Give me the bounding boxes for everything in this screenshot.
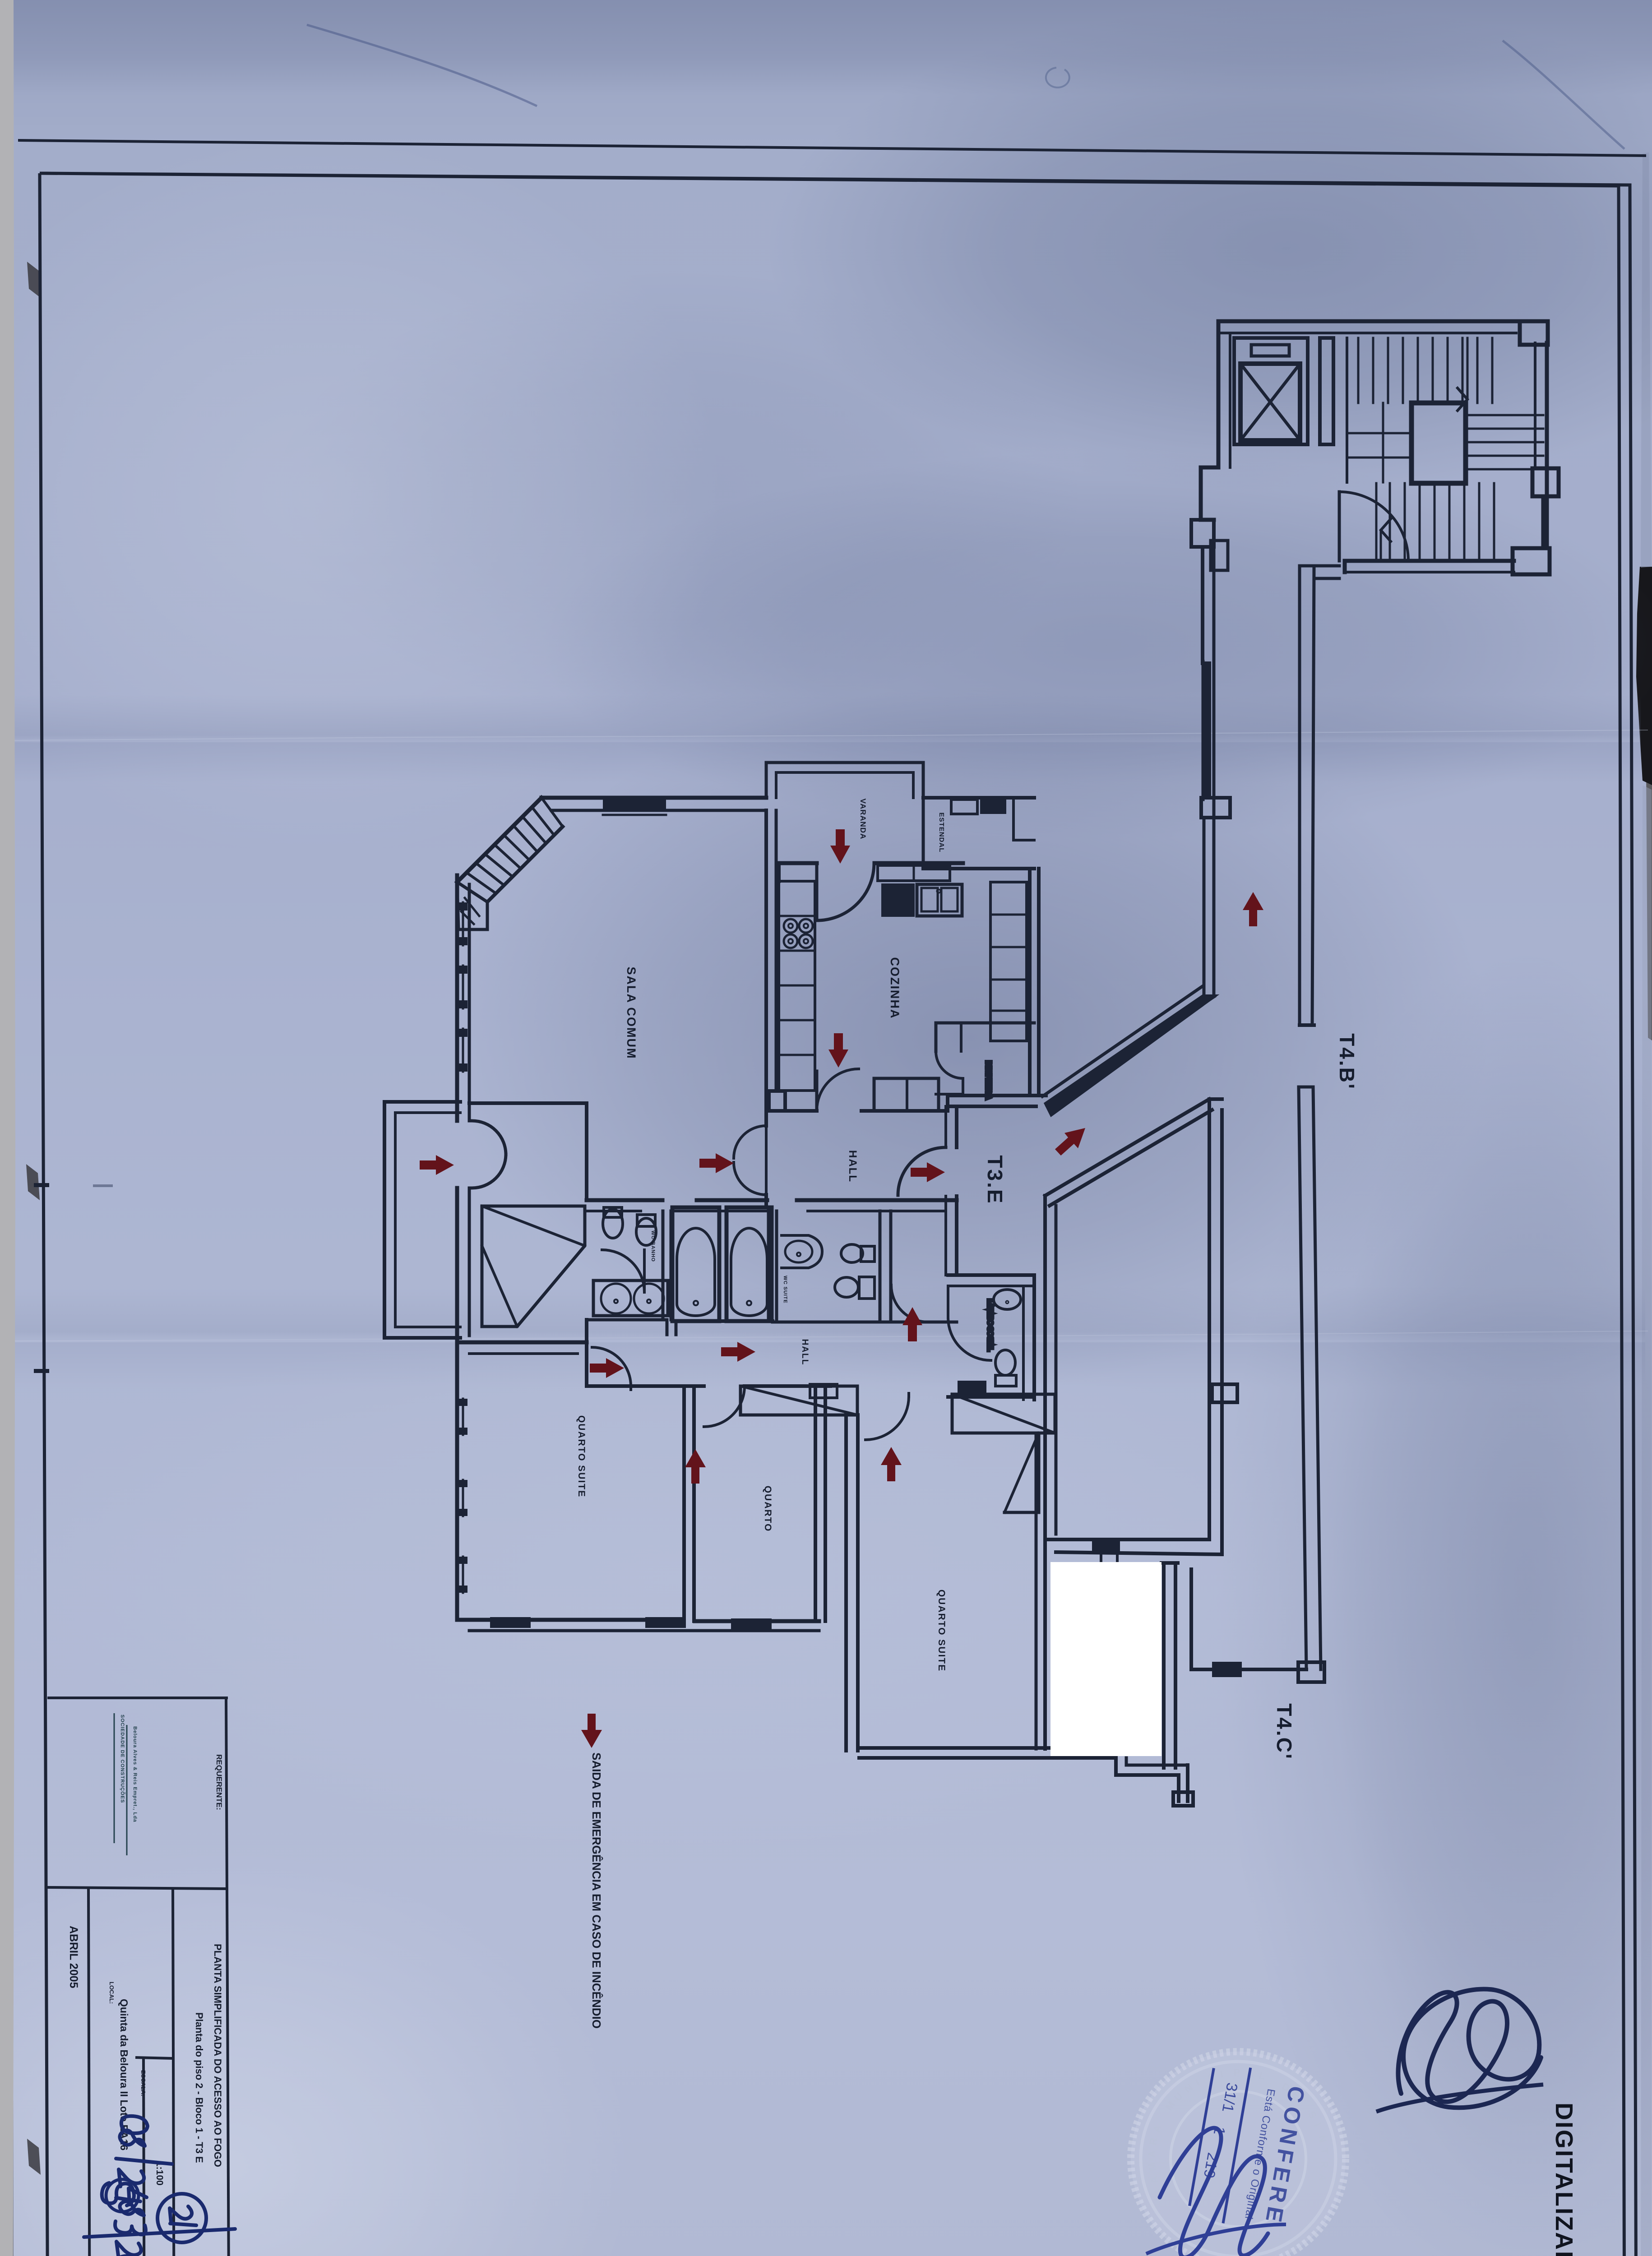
svg-text:ESCALA:: ESCALA: [140,2070,147,2096]
svg-text:T4.C': T4.C' [1273,1703,1296,1760]
svg-text:SALA COMUM: SALA COMUM [625,967,638,1059]
svg-text:WC SUITE: WC SUITE [782,1276,788,1304]
svg-text:QUARTO SUITE: QUARTO SUITE [936,1590,947,1672]
svg-text:ABRIL 2005: ABRIL 2005 [67,1926,80,1988]
svg-text:WC BANHO: WC BANHO [650,1230,656,1262]
svg-text:M: M [1146,2162,1158,2172]
svg-text:HALL: HALL [847,1150,859,1183]
svg-text:T4.B': T4.B' [1335,1033,1359,1090]
svg-text:HALL: HALL [800,1339,810,1366]
svg-text:LOCAL:: LOCAL: [108,1982,115,2004]
svg-text:COZINHA: COZINHA [888,957,902,1019]
svg-text:R: R [1319,2161,1330,2168]
svg-text:VARANDA: VARANDA [859,799,867,840]
svg-text:PLANTA SIMPLIFICADA DO ACESSO: PLANTA SIMPLIFICADA DO ACESSO AO FOGO [212,1944,223,2167]
svg-text:P: P [1233,2066,1240,2078]
svg-text:REQUERENTE:: REQUERENTE: [215,1754,223,1810]
svg-text:DIGITALIZADO: DIGITALIZADO [1550,2103,1578,2256]
svg-text:SAIDA DE EMERGÊNCIA EM CASO DE: SAIDA DE EMERGÊNCIA EM CASO DE INCÊNDIO [590,1752,603,2029]
svg-text:DISPENSA: DISPENSA [985,1061,992,1100]
svg-text:Planta do piso 2 - Bloco 1 - T: Planta do piso 2 - Bloco 1 - T3 E [194,2012,205,2163]
svg-text:A: A [1146,2150,1157,2158]
svg-text:QUARTO SUITE: QUARTO SUITE [576,1415,587,1498]
svg-text:Beloura Alves & Reis Empret.,: Beloura Alves & Reis Empret., Lda [132,1726,138,1822]
svg-text:SOCIEDADE DE CONSTRUÇÕES: SOCIEDADE DE CONSTRUÇÕES [120,1715,125,1803]
svg-text:ESTENDAL: ESTENDAL [938,813,945,853]
svg-text:QUARTO: QUARTO [763,1486,773,1532]
svg-text:LAVABO SOCIAL: LAVABO SOCIAL [987,1299,994,1351]
svg-text:T3.E: T3.E [983,1155,1007,1204]
